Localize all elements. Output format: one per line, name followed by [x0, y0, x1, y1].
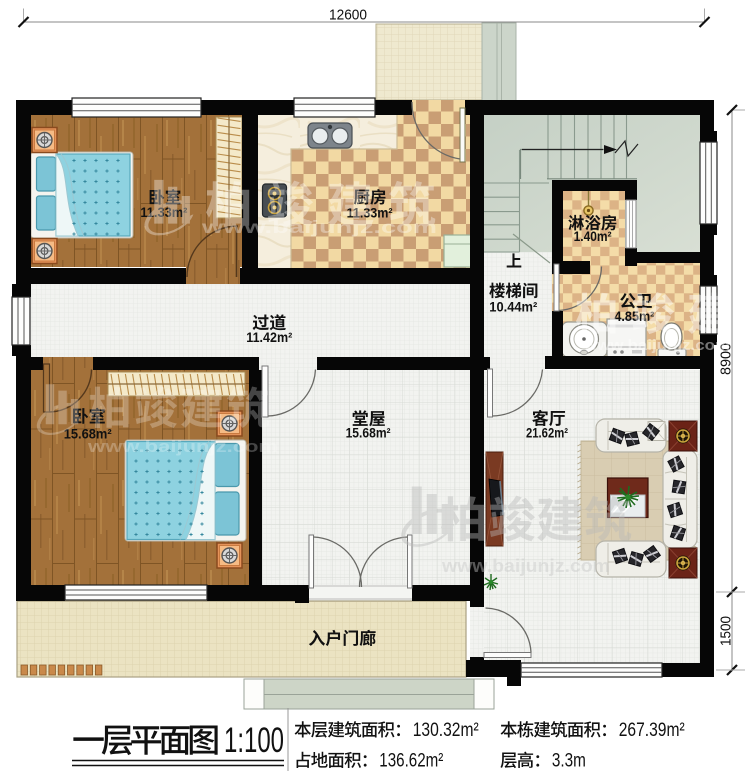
- svg-text:11.42m²: 11.42m²: [246, 330, 292, 345]
- svg-text:12600: 12600: [329, 7, 367, 24]
- svg-text:www.baijunjz.com: www.baijunjz.com: [87, 438, 278, 456]
- svg-text:www.baijunjz.com: www.baijunjz.com: [583, 337, 730, 354]
- svg-text:1500: 1500: [718, 616, 735, 646]
- svg-text:3.3m: 3.3m: [552, 751, 586, 772]
- svg-text:15.68m²: 15.68m²: [346, 426, 391, 441]
- svg-text:21.62m²: 21.62m²: [526, 426, 568, 441]
- svg-text:130.32m²: 130.32m²: [413, 720, 479, 741]
- svg-text:1.40m²: 1.40m²: [574, 229, 612, 244]
- svg-text:10.44m²: 10.44m²: [489, 300, 537, 315]
- svg-text:267.39m²: 267.39m²: [619, 720, 685, 741]
- svg-text:www.baijunjz.com: www.baijunjz.com: [441, 556, 610, 576]
- svg-text:www.baijunjz.com: www.baijunjz.com: [200, 217, 437, 237]
- svg-text:136.62m²: 136.62m²: [379, 751, 443, 772]
- svg-text:1:100: 1:100: [224, 721, 284, 760]
